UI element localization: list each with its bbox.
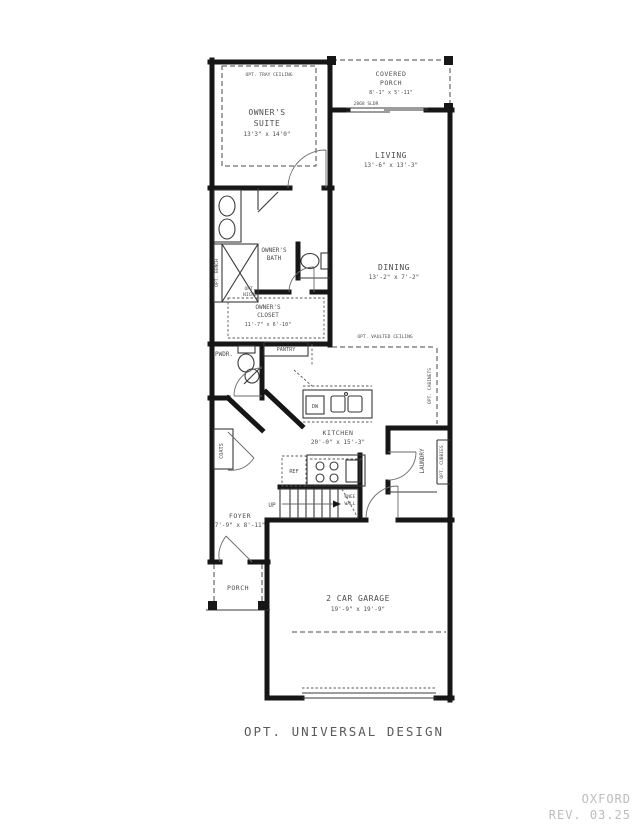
sink-basin [331, 396, 345, 412]
door-arc [219, 536, 252, 562]
room-coats: COATS [219, 443, 225, 459]
dims-kitchen: 20'-0" x 15'-3" [311, 439, 365, 446]
pantry-door-dashed [294, 344, 312, 386]
room-owners-closet: CLOSET [257, 312, 279, 319]
note-vaulted-ceiling: OPT. VAULTED CEILING [357, 334, 413, 340]
door-arc [228, 432, 254, 470]
sink-icon [219, 219, 235, 239]
room-owners-suite: SUITE [254, 119, 281, 128]
toilet-tank [321, 253, 328, 269]
note-opt-bench: OPT. BENCH [214, 259, 220, 287]
stair-treads [290, 489, 338, 518]
room-owners-suite: OWNER'S [248, 108, 285, 117]
plan-caption: OPT. UNIVERSAL DESIGN [244, 724, 444, 739]
dims-owners-closet: 11'-7" x 6'-10" [245, 322, 292, 328]
garage-door-lines [302, 693, 436, 698]
note-dishwasher: DW [312, 404, 319, 410]
dims-foyer: 7'-9" x 8'-11" [215, 522, 266, 529]
note-opt-cubbies: OPT. CUBBIES [439, 445, 445, 478]
dims-covered-porch: 8'-1" x 5'-11" [369, 90, 413, 96]
faucet-icon [345, 393, 348, 396]
dims-owners-suite: 13'3" x 14'0" [244, 131, 291, 138]
plan-name-watermark: OXFORD [582, 792, 631, 806]
dims-dining: 13'-2" x 7'-2" [369, 274, 420, 281]
room-powder: PWDR. [215, 351, 233, 358]
burner-icon [330, 462, 338, 470]
sink-icon [219, 196, 235, 216]
room-garage: 2 CAR GARAGE [326, 594, 390, 603]
room-dining: DINING [378, 263, 410, 272]
room-porch: PORCH [227, 584, 249, 592]
porch-post [444, 56, 453, 65]
door-arc [388, 452, 416, 480]
dims-living: 13'-6" x 13'-3" [364, 162, 418, 169]
room-owners-closet: OWNER'S [255, 304, 281, 311]
sink-basin [348, 396, 362, 412]
door-swings [219, 150, 416, 562]
room-foyer: FOYER [229, 512, 251, 520]
floorplan-page: { "plan": { "rooms": { "owners_suite": {… [0, 0, 640, 829]
room-kitchen: KITCHEN [323, 429, 354, 437]
porch-post [258, 601, 267, 610]
toilet-icon [301, 254, 319, 269]
porch-post [208, 601, 217, 610]
room-covered-porch: COVERED [376, 70, 407, 78]
porch-post [327, 56, 336, 65]
note-opt-niche: OPT. [244, 286, 255, 292]
floorplan-drawing: OPT. TRAY CEILING OWNER'S SUITE 13'3" x … [0, 0, 640, 829]
toilet-tank [238, 346, 255, 353]
plan-revision-watermark: REV. 03.25 [549, 808, 631, 822]
burner-icon [316, 474, 324, 482]
door-arc [288, 150, 326, 188]
room-owners-bath: OWNER'S [261, 247, 287, 254]
note-stairs-up: UP [268, 502, 276, 509]
note-slider-door: 2868 SLDR [354, 101, 379, 107]
wc-wall [258, 188, 330, 278]
wall-segment [266, 392, 302, 426]
room-pantry: PANTRY [277, 347, 297, 353]
door-arc [366, 486, 398, 518]
arrowhead-icon [333, 501, 341, 508]
note-tray-ceiling: OPT. TRAY CEILING [245, 72, 292, 78]
burner-icon [316, 462, 324, 470]
dims-garage: 19'-9" x 19'-9" [331, 606, 385, 613]
burner-icon [330, 474, 338, 482]
room-living: LIVING [375, 151, 407, 160]
note-knee-wall: WALL [344, 501, 355, 507]
porch-post [444, 103, 453, 112]
room-covered-porch: PORCH [380, 79, 402, 87]
room-laundry: LAUNDRY [419, 448, 426, 474]
door-arc [289, 267, 314, 292]
room-owners-bath: BATH [267, 255, 282, 262]
note-knee-wall: KNEE [344, 494, 355, 500]
slider-door-lines [346, 108, 428, 112]
note-opt-niche: NICHE [243, 292, 257, 298]
note-refrigerator: REF [289, 469, 298, 475]
note-opt-cabinets: OPT. CABINETS [427, 368, 433, 404]
